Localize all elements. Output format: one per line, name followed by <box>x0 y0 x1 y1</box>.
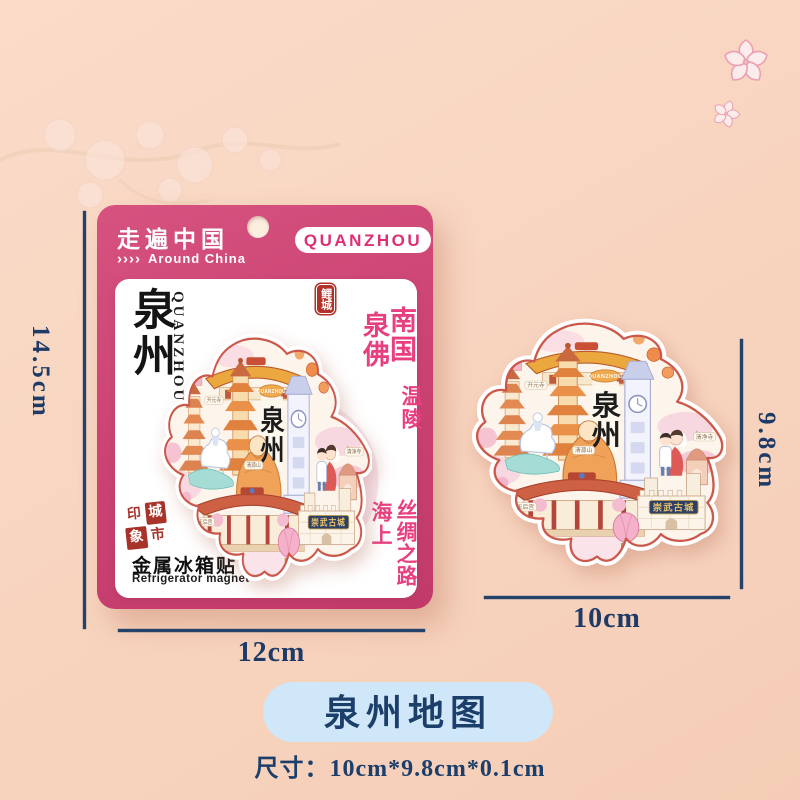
magnet-width-label: 10cm <box>484 603 730 635</box>
quanzhou-map-magnet-standalone: QUANZHOU 泉 州 崇武古城 开元寺 清源山 清净寺 天后宫 <box>447 312 726 570</box>
magnet-width-dimension-line <box>484 596 730 599</box>
card-width-label: 12cm <box>118 637 425 669</box>
magnet-height-dimension-line <box>740 339 743 589</box>
label-tianhou-palace: 天后宫 <box>517 503 535 511</box>
product-title-banner: 泉州地图 <box>263 682 553 742</box>
card-width-dimension-line <box>118 629 425 632</box>
label-kaiyuan-temple: 开元寺 <box>207 397 221 404</box>
label-qingjing-mosque: 清净寺 <box>696 433 714 441</box>
castle-banner-label: 崇武古城 <box>311 517 346 528</box>
city-name-pill: QUANZHOU <box>295 227 431 253</box>
brand-subtitle: Around China <box>148 251 246 266</box>
label-qingyuan-mountain: 清源山 <box>246 461 260 470</box>
card-height-dimension-line <box>83 211 86 629</box>
castle-banner-label: 崇武古城 <box>653 502 695 513</box>
licheng-seal-badge: 鲤城 <box>316 284 335 314</box>
label-tianhou-palace: 天后宫 <box>198 518 212 527</box>
magnet-title-char1: 泉 <box>260 404 285 436</box>
card-height-label: 14.5cm <box>26 325 54 419</box>
slogan-wenling: 温陵 <box>396 385 426 431</box>
magnet-title-char2: 州 <box>260 435 284 466</box>
label-kaiyuan-temple: 开元寺 <box>527 381 545 389</box>
product-photo-quanzhou-fridge-magnet: 走遍中国 ››››Around China QUANZHOU 泉州 QUANZH… <box>0 0 800 800</box>
magnet-title-char2: 州 <box>592 420 621 451</box>
chevrons-icon: ›››› <box>117 250 141 267</box>
slogan-silk-road: 丝绸之路 <box>391 499 421 587</box>
label-qingyuan-mountain: 清源山 <box>575 446 593 454</box>
quanzhou-map-magnet-on-card: QUANZHOU 泉 州 崇武古城 开元寺 清源山 清净寺 天后宫 <box>140 327 372 585</box>
sakura-flowers-decoration <box>668 18 798 148</box>
hang-hole <box>247 216 269 238</box>
brand-title: 走遍中国 <box>117 220 229 254</box>
brand-subtitle-row: ››››Around China <box>117 250 246 268</box>
magnet-title-tag: QUANZHOU <box>257 389 286 394</box>
magnet-height-label: 9.8cm <box>752 412 780 490</box>
label-qingjing-mosque: 清净寺 <box>347 447 361 456</box>
magnet-title-char1: 泉 <box>592 390 622 422</box>
magnet-title-tag: QUANZHOU <box>588 374 623 380</box>
product-size-label: 尺寸：10cm*9.8cm*0.1cm <box>0 748 800 783</box>
